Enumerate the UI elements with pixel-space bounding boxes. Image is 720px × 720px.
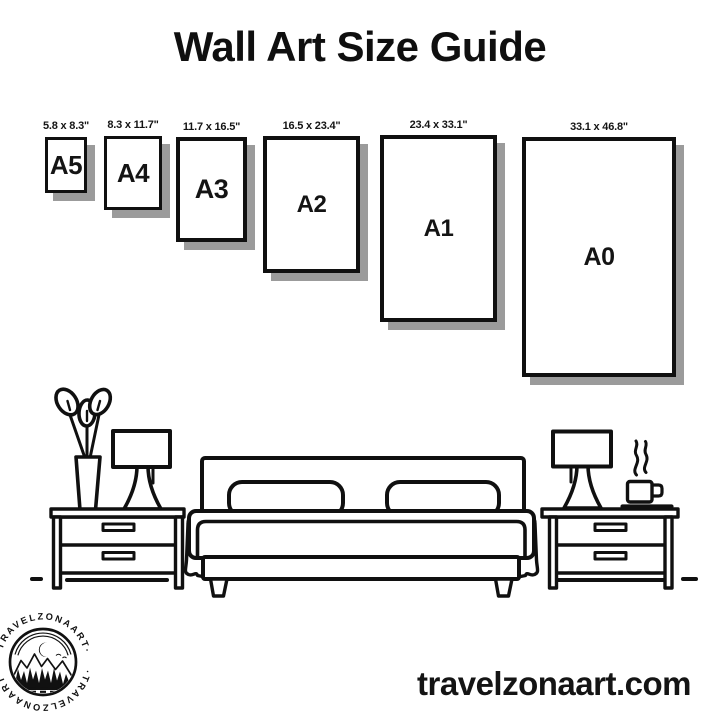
frame-a0-label: A0 [584, 243, 615, 272]
blanket-drape-right [518, 513, 538, 577]
blanket-drape-left [185, 513, 205, 577]
steam-icon [644, 442, 647, 473]
frame-a3-label: A3 [195, 174, 229, 205]
coffee-cup-icon [623, 441, 672, 507]
birds-icon [56, 654, 67, 658]
frame-a4: 8.3 x 11.7" A4 [104, 136, 162, 210]
nightstand-left-icon [51, 509, 184, 588]
nightstand-right-icon [542, 509, 678, 588]
frame-a4-label: A4 [117, 158, 149, 189]
moon-icon [39, 642, 47, 657]
logo-ring [10, 629, 76, 695]
frame-a2: 16.5 x 23.4" A2 [263, 136, 360, 273]
poster: Wall Art Size Guide 5.8 x 8.3" A5 8.3 x … [0, 0, 720, 720]
bed-icon [185, 458, 537, 596]
bed-foot-right [496, 579, 513, 596]
logo-scene [9, 633, 77, 692]
steam-icon [635, 441, 638, 475]
website-url: travelzonaart.com [400, 667, 708, 700]
frame-a5: 5.8 x 8.3" A5 [45, 137, 87, 193]
bed-base [203, 557, 519, 579]
bed-foot-left [211, 579, 228, 596]
drawer-handle [103, 553, 134, 560]
table-lamp-right-icon [553, 432, 611, 509]
drawer-handle [595, 553, 626, 560]
brand-logo-badge: ·TRAVELZONAART· ·TRAVELZONAART· [0, 611, 93, 712]
headboard [202, 458, 524, 514]
mountains-icon [11, 654, 75, 681]
flower-vase-icon [51, 385, 114, 510]
frame-a3-dimensions: 11.7 x 16.5" [183, 121, 240, 133]
frame-a1: 23.4 x 33.1" A1 [380, 135, 497, 322]
pillow-left [229, 482, 343, 516]
frame-a1-dimensions: 23.4 x 33.1" [410, 119, 468, 131]
logo-text-bottom: ·TRAVELZONAART· [0, 669, 93, 713]
frame-a2-label: A2 [297, 191, 327, 219]
frame-a5-label: A5 [50, 150, 82, 181]
trees-icon [9, 668, 77, 691]
logo-text-top: ·TRAVELZONAART· [0, 611, 93, 655]
frame-a3: 11.7 x 16.5" A3 [176, 137, 247, 242]
drawer-handle [595, 524, 626, 531]
frame-a5-dimensions: 5.8 x 8.3" [43, 120, 89, 132]
pillow-right [387, 482, 499, 516]
floor-line [32, 579, 696, 580]
frame-a2-dimensions: 16.5 x 23.4" [283, 120, 341, 132]
frame-a0: 33.1 x 46.8" A0 [522, 137, 676, 377]
frame-a0-dimensions: 33.1 x 46.8" [570, 121, 628, 133]
page-title: Wall Art Size Guide [0, 26, 720, 68]
frame-a1-label: A1 [424, 215, 454, 243]
drawer-handle [103, 524, 134, 531]
table-lamp-left-icon [113, 431, 170, 509]
frame-a4-dimensions: 8.3 x 11.7" [107, 119, 158, 131]
duvet [189, 511, 534, 558]
